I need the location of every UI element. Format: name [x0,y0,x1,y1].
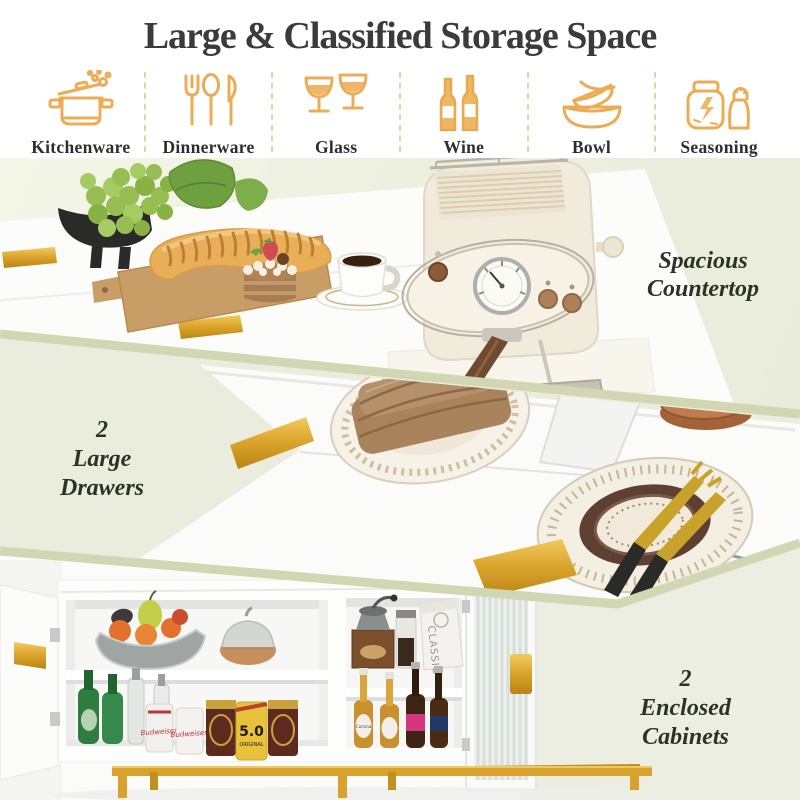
cabinet-shelf [66,670,328,680]
svg-text:ORIGINAL: ORIGINAL [239,742,263,748]
category-label: Kitchenware [31,137,130,158]
category-dinnerware: Dinnerware [146,70,272,158]
product-feature-infographic: Large & Classified Storage Space Kitchen… [0,0,800,800]
category-kitchenware: Kitchenware [18,70,144,158]
yellow-beer-can: 5.0 ORIGINAL [236,702,267,760]
grape-leaf [169,160,234,208]
svg-text:Corona: Corona [355,724,371,730]
category-label: Seasoning [680,137,758,158]
coffee-bag: CLASSIC [420,598,463,675]
budweiser-can: Budweiser [140,704,178,752]
stacked-bowls-icon [555,70,629,134]
gold-base-frame [50,766,670,800]
wine-bottles-icon [427,70,501,134]
category-glass: Glass [273,70,399,158]
page-title: Large & Classified Storage Space [0,14,800,58]
wine-glasses-icon [299,70,373,134]
maroon-beer-can [206,700,236,756]
category-wine: Wine [401,70,527,158]
category-label: Glass [315,137,357,158]
cutlery-icon [172,70,246,134]
maroon-beer-can [268,700,298,756]
cabinets-caption: 2 Enclosed Cabinets [598,665,773,752]
jar-and-shaker-icon [682,70,756,134]
category-label: Wine [443,137,484,158]
category-row: Kitchenware Dinnerware [18,70,782,158]
category-bowl: Bowl [529,70,655,158]
left-cabinet-door [0,585,60,780]
svg-text:5.0: 5.0 [239,724,264,740]
pot-icon [44,70,118,134]
budweiser-can: Budweiser [170,708,208,754]
coffee-bean-jar [396,610,416,668]
glass-door-handle [510,654,532,694]
category-label: Bowl [572,137,611,158]
category-label: Dinnerware [162,137,254,158]
countertop-caption: Spacious Countertop [608,247,798,303]
drawers-caption: 2 Large Drawers [22,416,182,503]
glass-cabinet-door [462,578,536,790]
category-seasoning: Seasoning [656,70,782,158]
